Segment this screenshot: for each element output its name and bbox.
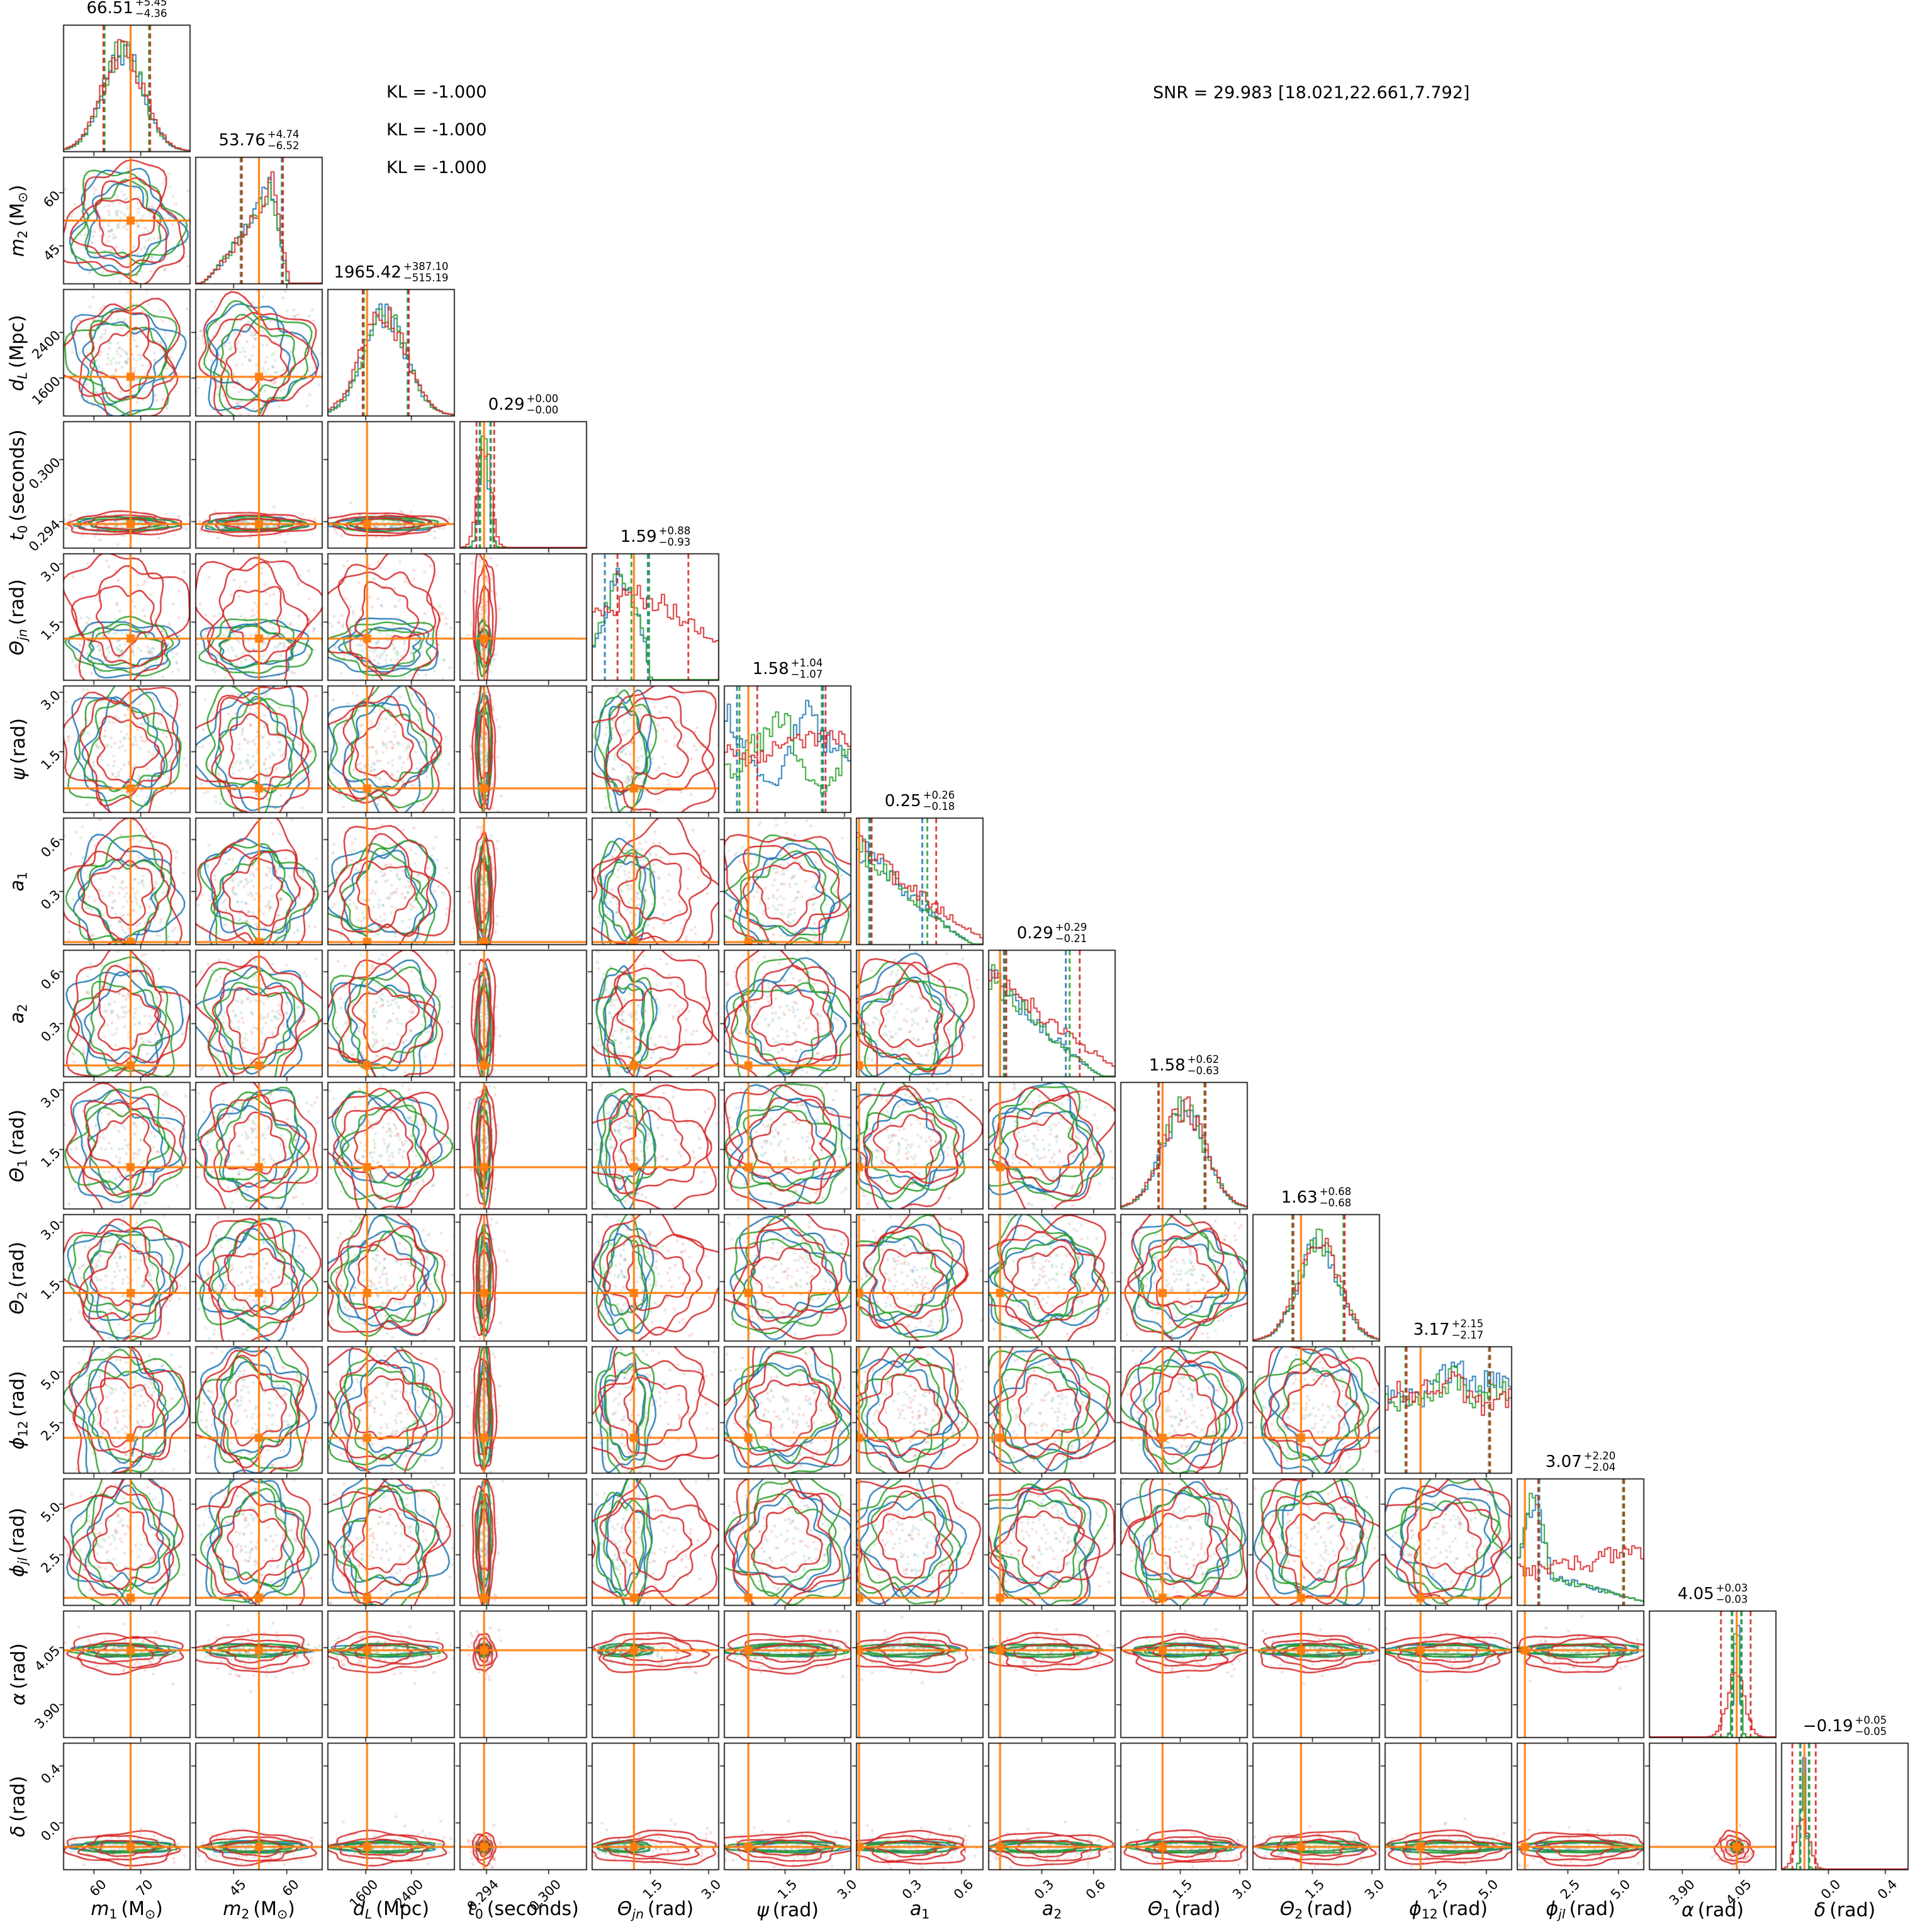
title-minus: −6.52 [267,140,300,152]
y-tick-label: 60 [41,188,64,211]
title-plus: +0.26 [923,790,955,801]
diag-title-delta: −0.19+0.05−0.05 [1782,1712,1908,1741]
title-minus: −1.07 [791,669,823,680]
title-median: 3.17 [1413,1320,1450,1339]
title-median: 0.29 [488,395,525,414]
y-axis-label-theta_1: Θ1 (rad) [0,1082,37,1209]
title-minus: −0.93 [659,537,691,548]
x-axis-label-delta: δ (rad) [1782,1895,1908,1924]
diag-title-a2: 0.29+0.29−0.21 [989,919,1115,948]
x-axis-label-a2: a2 [989,1895,1115,1924]
y-axis-label-a1: a1 [0,818,37,945]
diag-title-t0: 0.29+0.00−0.00 [460,390,587,419]
title-median: 0.25 [885,792,921,811]
diag-title-dL: 1965.42+387.10−515.19 [328,258,454,287]
diag-title-phi_12: 3.17+2.15−2.17 [1385,1315,1512,1344]
y-axis-label-alpha: α (rad) [0,1611,37,1738]
y-tick-label: 5.0 [38,1368,64,1393]
title-minus: −0.03 [1716,1594,1748,1605]
title-plus: +0.03 [1716,1583,1748,1594]
kl-annotation-3: KL = -1.000 [386,158,487,177]
y-tick-label: 0.3 [38,887,64,913]
diag-title-m1: 66.51+5.45−4.36 [64,0,190,23]
diag-title-psi: 1.58+1.04−1.07 [724,654,851,683]
diag-title-m2: 53.76+4.74−6.52 [196,126,322,155]
y-tick-label: 0.0 [38,1818,64,1844]
title-minus: −4.36 [135,8,167,20]
title-minus: −0.68 [1320,1198,1352,1209]
title-minus: −0.18 [923,801,955,812]
x-axis-label-phi_12: ϕ12 (rad) [1385,1895,1512,1924]
y-tick-label: 1.5 [38,617,64,643]
title-median: 1.59 [621,527,657,546]
x-axis-label-m2: m2 (M⊙) [196,1895,322,1924]
corner-plot-figure: 66.51+5.45−4.36m1 (M⊙)607053.76+4.74−6.5… [0,0,1932,1932]
y-tick-label: 45 [41,241,64,264]
title-plus: +4.74 [267,129,300,140]
y-tick-label: 3.0 [38,559,64,585]
title-median: 53.76 [218,131,265,150]
title-plus: +0.62 [1188,1054,1220,1065]
title-minus: −2.04 [1584,1462,1616,1473]
y-tick-label: 3.0 [38,1218,64,1244]
y-tick-label: 1.5 [38,1277,64,1303]
diag-title-theta_2: 1.63+0.68−0.68 [1253,1183,1379,1212]
x-axis-label-theta_1: Θ1 (rad) [1121,1895,1247,1924]
title-plus: +387.10 [403,261,449,272]
title-median: 66.51 [86,0,133,18]
title-median: −0.19 [1803,1717,1853,1736]
snr-annotation: SNR = 29.983 [18.021,22.661,7.792] [1153,83,1469,103]
title-minus: −0.21 [1055,933,1087,945]
y-axis-label-m2: m2 (M⊙) [0,157,37,284]
y-tick-label: 3.0 [38,688,64,714]
x-axis-label-phi_jl: ϕjl (rad) [1517,1895,1644,1924]
title-minus: −515.19 [403,272,449,284]
title-minus: −0.00 [527,405,559,416]
x-axis-label-a1: a1 [856,1895,983,1924]
title-plus: +0.68 [1320,1186,1352,1198]
y-axis-label-delta: δ (rad) [0,1743,37,1870]
title-plus: +1.04 [791,658,823,669]
title-plus: +0.29 [1055,922,1087,933]
title-minus: −2.17 [1452,1330,1484,1341]
title-median: 1.58 [1149,1056,1186,1075]
title-minus: −0.63 [1188,1065,1220,1077]
title-median: 1.63 [1281,1188,1318,1207]
kl-annotation-2: KL = -1.000 [386,120,487,140]
title-plus: +0.00 [527,393,559,405]
x-axis-label-m1: m1 (M⊙) [64,1895,190,1924]
y-tick-label: 3.0 [38,1086,64,1111]
diag-title-theta_1: 1.58+0.62−0.63 [1121,1051,1247,1080]
y-axis-label-theta_jn: Θjn (rad) [0,554,37,680]
y-tick-label: 0.6 [38,967,64,993]
x-axis-label-theta_jn: Θjn (rad) [592,1895,719,1924]
y-axis-label-phi_jl: ϕjl (rad) [0,1479,37,1605]
y-tick-label: 1.5 [38,1145,64,1171]
x-axis-label-psi: ψ (rad) [724,1895,851,1924]
kl-annotation-1: KL = -1.000 [386,82,487,102]
title-median: 1.58 [753,660,789,678]
title-plus: +0.88 [659,525,691,537]
title-median: 4.05 [1678,1585,1714,1603]
y-tick-label: 1.5 [38,747,64,773]
title-median: 0.29 [1017,924,1053,943]
title-median: 3.07 [1546,1452,1582,1471]
diag-title-a1: 0.25+0.26−0.18 [856,787,983,816]
diag-title-alpha: 4.05+0.03−0.03 [1649,1580,1776,1609]
y-tick-label: 0.4 [38,1761,64,1787]
y-tick-label: 2.5 [38,1550,64,1576]
title-plus: +0.05 [1855,1715,1887,1726]
diag-title-theta_jn: 1.59+0.88−0.93 [592,522,719,551]
y-axis-label-phi_12: ϕ12 (rad) [0,1347,37,1473]
y-axis-label-theta_2: Θ2 (rad) [0,1215,37,1341]
y-tick-label: 5.0 [38,1500,64,1525]
y-axis-label-psi: ψ (rad) [0,686,37,812]
diag-title-phi_jl: 3.07+2.20−2.04 [1517,1447,1644,1476]
title-median: 1965.42 [334,263,402,282]
x-axis-label-theta_2: Θ2 (rad) [1253,1895,1379,1924]
y-tick-label: 0.6 [38,835,64,861]
title-minus: −0.05 [1855,1726,1887,1738]
y-axis-label-a2: a2 [0,950,37,1077]
y-tick-label: 0.3 [38,1019,64,1045]
text-layer: 66.51+5.45−4.36m1 (M⊙)607053.76+4.74−6.5… [0,0,1932,1932]
y-tick-label: 2.5 [38,1418,64,1444]
title-plus: +2.15 [1452,1318,1484,1330]
title-plus: +2.20 [1584,1451,1616,1462]
